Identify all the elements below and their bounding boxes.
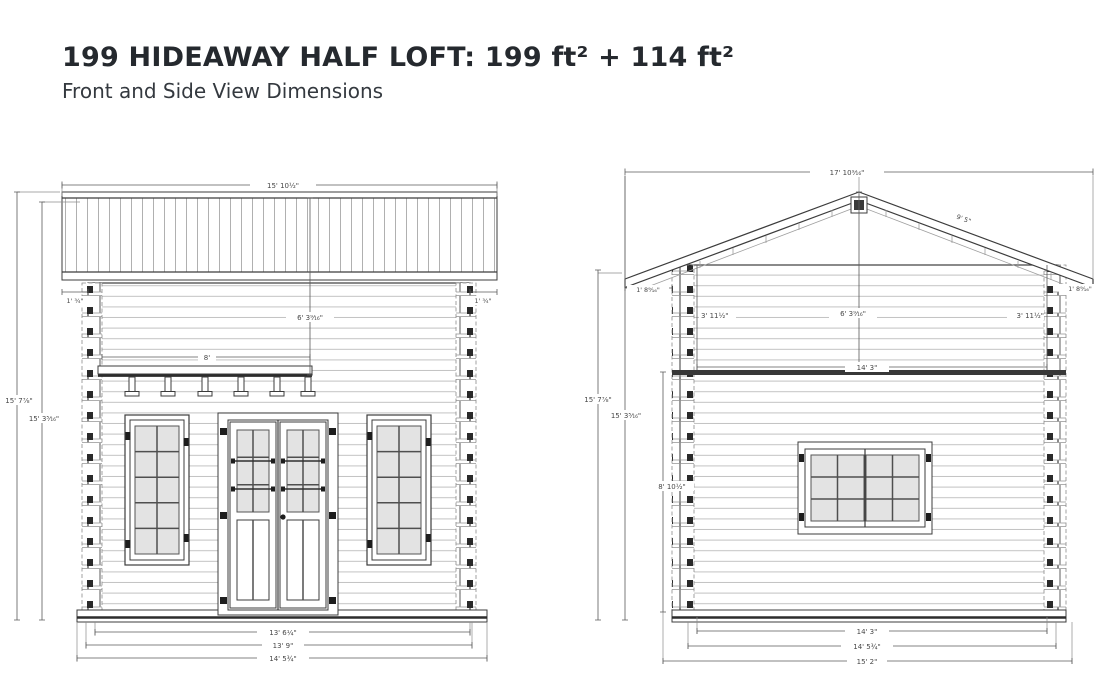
side-corner-logs-left	[672, 265, 694, 612]
blueprint-canvas: 15' 10½" 1' ¾" 1' ¾" 15' 7⅞" 15' 3⁵⁄₁₆" …	[0, 0, 1100, 693]
side-first-floor-height-dim: 8' 10½"	[658, 483, 686, 491]
side-loft-left-dim: 3' 11½"	[701, 312, 729, 320]
front-window-left	[125, 415, 189, 565]
front-base-width-dim: 14' 5¾"	[269, 655, 297, 663]
front-double-door	[218, 413, 338, 615]
front-shelf-width-dim: 8'	[204, 354, 210, 362]
door-knob	[280, 514, 285, 519]
front-door-height-dim: 6' 3⁹⁄₁₆"	[297, 314, 323, 322]
front-window-right	[367, 415, 431, 565]
side-eave-right-dim: 1' 8⁹⁄₁₆"	[1068, 285, 1092, 293]
side-loft-right-dim: 3' 11½"	[1016, 312, 1044, 320]
side-window	[798, 442, 932, 534]
side-floor-width-dim: 14' 3"	[857, 628, 878, 636]
front-inner-width-dim: 13' 6¼"	[269, 629, 297, 637]
side-wall-height-dim: 15' 3⁵⁄₁₆"	[611, 412, 641, 420]
side-roof-width-dim: 17' 10⁹⁄₁₆"	[830, 169, 865, 177]
side-eave-left-dim: 1' 8⁹⁄₁₆"	[636, 286, 660, 294]
side-overall-width-dim: 15' 2"	[857, 658, 878, 666]
front-roof	[62, 192, 497, 280]
front-view: 15' 10½" 1' ¾" 1' ¾" 15' 7⅞" 15' 3⁵⁄₁₆" …	[1, 180, 498, 663]
front-eave-right-dim: 1' ¾"	[475, 297, 492, 305]
side-foundation	[672, 610, 1066, 622]
front-corner-logs-right	[456, 283, 476, 612]
front-wall-height-dim: 15' 3⁵⁄₁₆"	[29, 415, 59, 423]
side-rafter-length-dim: 9' 5"	[955, 213, 972, 226]
side-view: 17' 10⁹⁄₁₆" 9' 5" 1' 8⁹⁄₁₆" 1' 8⁹⁄₁₆" 15…	[578, 167, 1100, 666]
front-overall-height-dim: 15' 7⅞"	[5, 397, 33, 405]
side-base-width-dim: 14' 5¾"	[853, 643, 881, 651]
front-eave-left-dim: 1' ¾"	[67, 297, 84, 305]
front-corner-logs-left	[82, 283, 102, 612]
front-wall-width-dim: 13' 9"	[273, 642, 294, 650]
side-overall-height-dim: 15' 7⅞"	[584, 396, 612, 404]
blueprint-page: 199 HIDEAWAY HALF LOFT: 199 ft² + 114 ft…	[0, 0, 1100, 693]
front-roof-width-dim: 15' 10½"	[267, 182, 299, 190]
side-loft-center-dim: 6' 3⁹⁄₁₆"	[840, 310, 866, 318]
front-roof-planks	[63, 198, 496, 272]
side-loft-width-dim: 14' 3"	[857, 364, 878, 372]
